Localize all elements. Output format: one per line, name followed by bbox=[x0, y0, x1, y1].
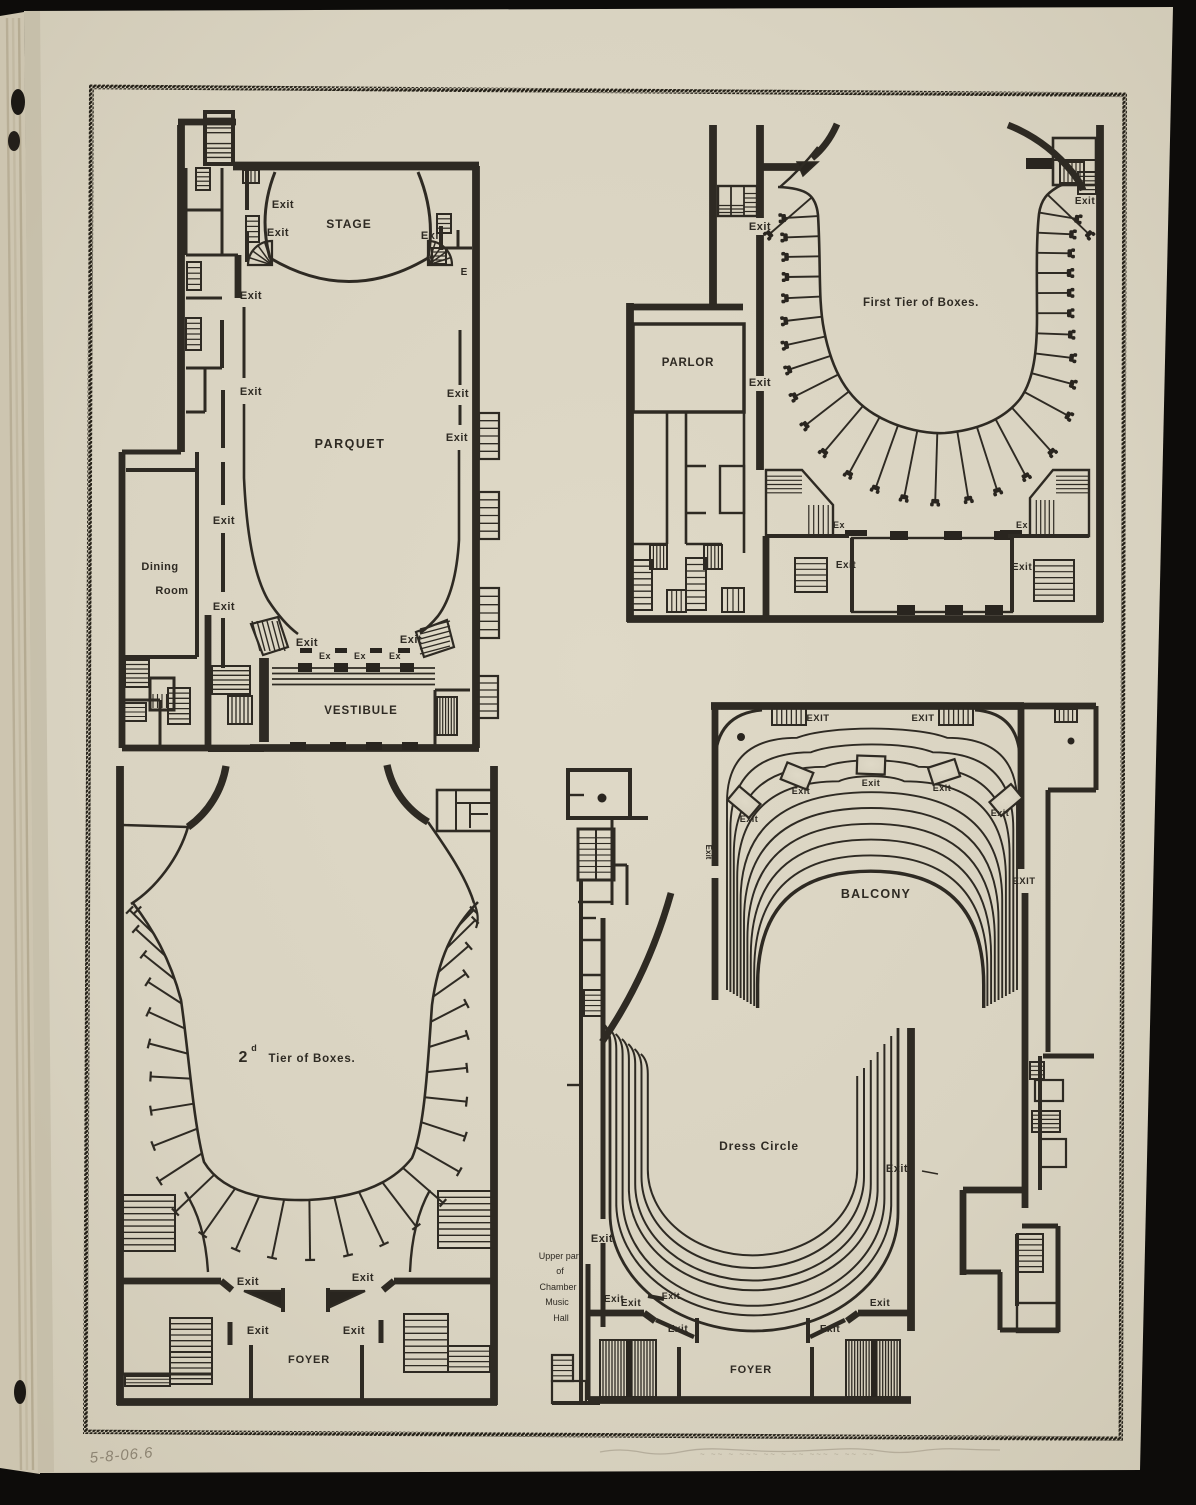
svg-text:Exit: Exit bbox=[1012, 562, 1033, 573]
svg-text:Exit: Exit bbox=[668, 1324, 689, 1335]
svg-text:~ ~~ ~ ~~~ ~~ ~ ~~ ~~~ ~ ~~ ~~: ~ ~~ ~ ~~~ ~~ ~ ~~ ~~~ ~ ~~ ~~ bbox=[700, 1450, 876, 1459]
svg-text:Ex: Ex bbox=[833, 520, 845, 530]
svg-text:Exit: Exit bbox=[991, 808, 1010, 818]
svg-text:Exit: Exit bbox=[933, 783, 952, 793]
svg-text:FOYER: FOYER bbox=[730, 1364, 772, 1376]
svg-text:Exit: Exit bbox=[213, 515, 235, 527]
svg-text:Upper part: Upper part bbox=[539, 1251, 582, 1261]
svg-text:E: E bbox=[461, 267, 468, 278]
svg-text:PARQUET: PARQUET bbox=[315, 437, 386, 451]
svg-text:Exit: Exit bbox=[240, 290, 262, 302]
svg-text:BALCONY: BALCONY bbox=[841, 887, 911, 901]
svg-text:Dress Circle: Dress Circle bbox=[719, 1139, 799, 1153]
svg-text:Exit: Exit bbox=[862, 778, 881, 788]
svg-text:Exit: Exit bbox=[343, 1325, 365, 1337]
svg-text:Exit: Exit bbox=[704, 845, 713, 860]
svg-text:Exit: Exit bbox=[870, 1298, 891, 1309]
svg-text:Exit: Exit bbox=[1075, 196, 1096, 207]
svg-text:PARLOR: PARLOR bbox=[662, 357, 715, 369]
svg-text:Exit: Exit bbox=[272, 199, 294, 211]
svg-text:FOYER: FOYER bbox=[288, 1354, 330, 1366]
svg-text:EXIT: EXIT bbox=[806, 713, 829, 724]
svg-text:Music: Music bbox=[545, 1297, 569, 1307]
svg-text:Exit: Exit bbox=[820, 1324, 841, 1335]
svg-text:Exit: Exit bbox=[240, 386, 262, 398]
svg-text:Exit: Exit bbox=[267, 227, 289, 239]
svg-text:Exit: Exit bbox=[604, 1294, 625, 1305]
svg-text:Exit: Exit bbox=[296, 637, 318, 649]
svg-text:Exit: Exit bbox=[237, 1276, 259, 1288]
svg-text:Exit: Exit bbox=[247, 1325, 269, 1337]
svg-text:Ex: Ex bbox=[354, 651, 366, 661]
svg-text:Exit: Exit bbox=[213, 601, 235, 613]
svg-text:Exit: Exit bbox=[886, 1163, 908, 1175]
svg-text:Ex: Ex bbox=[389, 651, 401, 661]
svg-text:Tier of Boxes.: Tier of Boxes. bbox=[268, 1053, 355, 1065]
svg-text:VESTIBULE: VESTIBULE bbox=[324, 705, 398, 717]
svg-text:2: 2 bbox=[239, 1049, 248, 1066]
svg-text:Exit: Exit bbox=[836, 560, 857, 571]
svg-text:Ex: Ex bbox=[1016, 520, 1028, 530]
svg-text:Exit: Exit bbox=[400, 634, 422, 646]
svg-text:d: d bbox=[251, 1043, 257, 1053]
svg-text:Room: Room bbox=[155, 585, 188, 597]
svg-text:Ex: Ex bbox=[319, 651, 331, 661]
svg-text:EXIT: EXIT bbox=[911, 713, 934, 724]
svg-text:Exit: Exit bbox=[740, 814, 759, 824]
svg-text:Dining: Dining bbox=[141, 561, 178, 573]
svg-text:Chamber: Chamber bbox=[539, 1282, 576, 1292]
svg-text:Hall: Hall bbox=[553, 1313, 569, 1323]
svg-text:Exit: Exit bbox=[792, 786, 811, 796]
svg-text:Exit: Exit bbox=[662, 1291, 681, 1301]
svg-text:EXIT: EXIT bbox=[1012, 876, 1035, 887]
svg-text:of: of bbox=[556, 1266, 564, 1276]
svg-text:Exit: Exit bbox=[352, 1272, 374, 1284]
svg-text:STAGE: STAGE bbox=[326, 217, 371, 231]
svg-text:First Tier of Boxes.: First Tier of Boxes. bbox=[863, 297, 979, 309]
svg-text:Exit: Exit bbox=[749, 377, 771, 389]
svg-text:Exit: Exit bbox=[446, 432, 468, 444]
svg-text:Exit: Exit bbox=[447, 388, 469, 400]
